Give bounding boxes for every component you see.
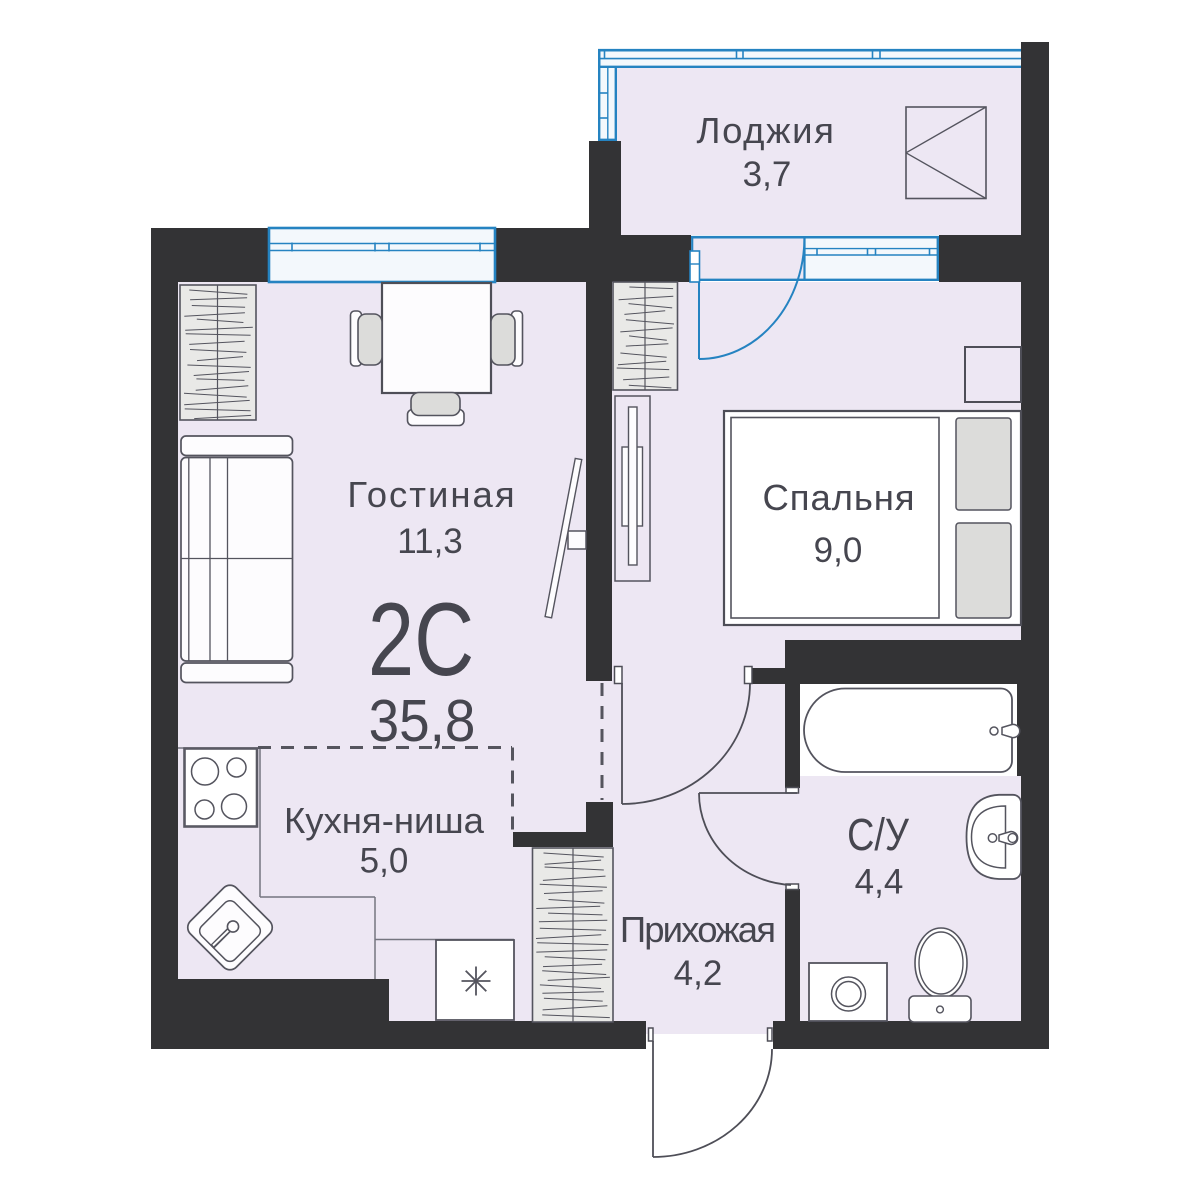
svg-text:4,2: 4,2 <box>674 954 723 993</box>
svg-text:35,8: 35,8 <box>369 688 476 754</box>
svg-text:Гостиная: Гостиная <box>347 474 516 515</box>
svg-text:2С: 2С <box>368 581 474 697</box>
svg-text:5,0: 5,0 <box>360 842 409 881</box>
svg-text:Прихожая: Прихожая <box>620 909 774 950</box>
svg-text:С/У: С/У <box>847 809 909 860</box>
svg-text:9,0: 9,0 <box>814 531 863 570</box>
svg-text:11,3: 11,3 <box>397 522 463 561</box>
svg-text:Кухня-ниша: Кухня-ниша <box>284 800 485 841</box>
svg-text:3,7: 3,7 <box>743 155 792 194</box>
svg-text:Лоджия: Лоджия <box>697 110 836 151</box>
svg-text:4,4: 4,4 <box>855 863 904 902</box>
svg-text:Спальня: Спальня <box>763 477 916 518</box>
